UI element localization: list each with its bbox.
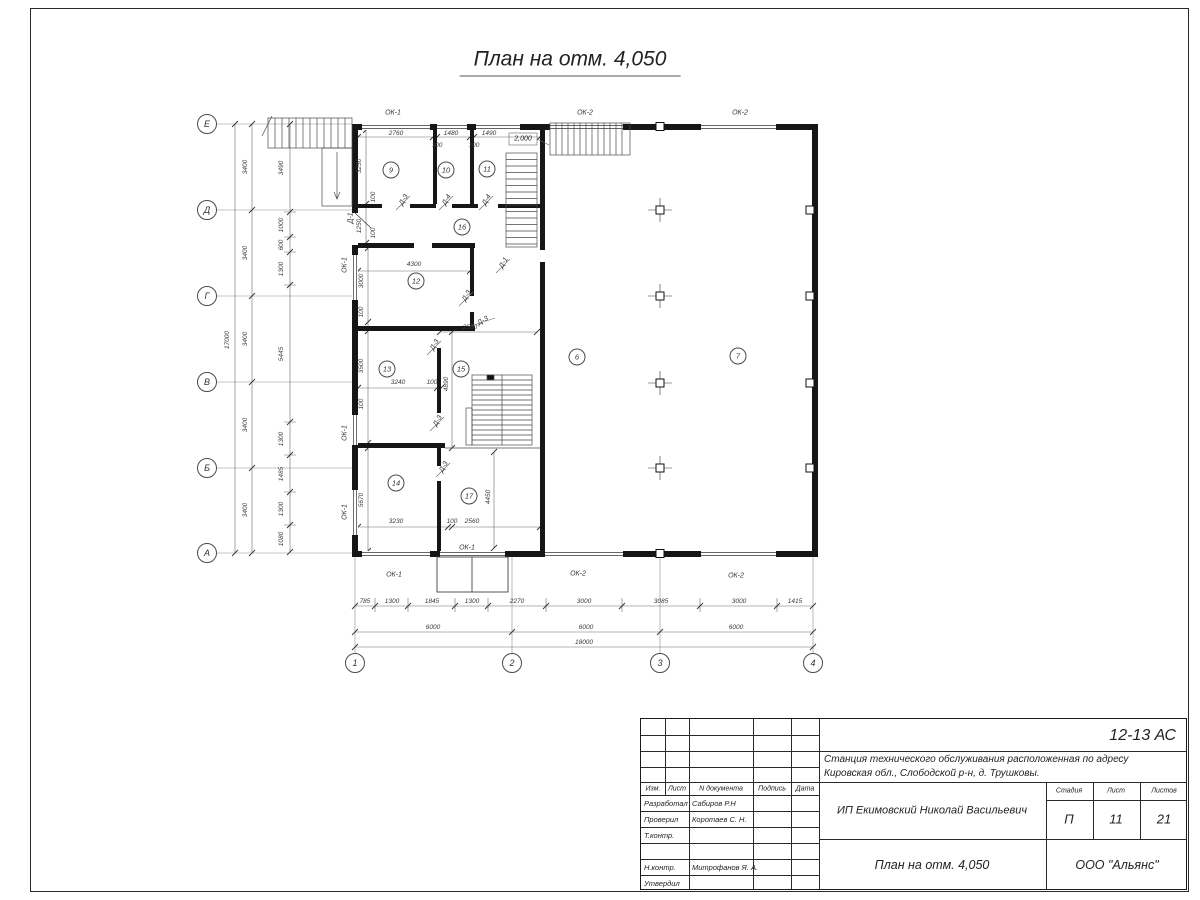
dim-text: 1000 <box>279 218 286 232</box>
role-label: Т.контр. <box>644 832 674 840</box>
room-number-13: 13 <box>379 361 396 378</box>
axis-marker-Г: Г <box>197 286 217 306</box>
dim-text: 1250 <box>357 219 364 233</box>
dim-text: 3400 <box>243 246 250 260</box>
room-number-17: 17 <box>461 488 478 505</box>
room-number-12: 12 <box>408 273 425 290</box>
dim-text: 100 <box>447 519 458 526</box>
dim-text: 1845 <box>425 599 439 606</box>
dim-text: 1490 <box>482 131 496 138</box>
dim-text: 600 <box>279 240 286 251</box>
dim-text: 4450 <box>486 490 493 504</box>
stamp-line <box>641 782 1186 783</box>
axis-marker-Б: Б <box>197 458 217 478</box>
axis-marker-2: 2 <box>502 653 522 673</box>
dim-text: 2270 <box>510 599 524 606</box>
object-line-1: Станция технического обслуживания распол… <box>824 755 1128 765</box>
dim-text: 1300 <box>279 262 286 276</box>
dim-text: 3240 <box>391 380 405 387</box>
window-label: ОК-2 <box>732 110 748 117</box>
axis-marker-А: А <box>197 543 217 563</box>
dim-text: 2760 <box>389 131 403 138</box>
role-name: Сабиров Р.Н <box>692 800 736 808</box>
stamp-line <box>641 751 819 752</box>
stamp-line <box>641 859 819 860</box>
sheets-header: Листов <box>1151 788 1177 795</box>
dim-text: 3250 <box>357 159 364 173</box>
dim-text: 2560 <box>465 519 479 526</box>
dim-text: 6000 <box>426 625 440 632</box>
window-label: ОК-1 <box>459 545 475 552</box>
role-name: Коротаев С. Н. <box>692 816 747 824</box>
dim-text: 3000 <box>577 599 591 606</box>
columns <box>648 123 814 558</box>
drawing-sheet: План на отм. 4,050 <box>0 0 1200 900</box>
axis-marker-3: 3 <box>650 653 670 673</box>
door-label: Д-1 <box>348 212 355 223</box>
dim-text: 3400 <box>243 160 250 174</box>
axis-marker-1: 1 <box>345 653 365 673</box>
stamp-line <box>819 719 820 889</box>
window-label: ОК-1 <box>385 110 401 117</box>
sheet-header: Лист <box>1107 788 1125 795</box>
stamp-line <box>641 875 819 876</box>
window-label: ОК-2 <box>728 573 744 580</box>
room-number-10: 10 <box>438 162 455 179</box>
stamp-line <box>689 719 690 889</box>
window-label: ОК-1 <box>342 425 349 441</box>
col-podp: Подпись <box>758 786 786 793</box>
dim-text: 1300 <box>279 502 286 516</box>
stamp-line <box>641 811 819 812</box>
stamp-line <box>641 735 819 736</box>
dim-text: 100 <box>359 307 366 318</box>
drawing-name: План на отм. 4,050 <box>875 859 990 872</box>
dim-text: 3400 <box>243 503 250 517</box>
role-label: Утвердил <box>644 880 680 888</box>
windows <box>352 124 776 557</box>
role-label: Проверил <box>644 816 678 824</box>
stamp-line <box>641 843 819 844</box>
dimension-ticks <box>232 121 816 650</box>
col-ndoc: N документа <box>699 786 743 793</box>
window-label: ОК-1 <box>386 572 402 579</box>
room-number-16: 16 <box>454 219 471 236</box>
dim-text: 5670 <box>359 493 366 507</box>
stage-header: Стадия <box>1056 788 1082 795</box>
room-number-7: 7 <box>730 348 747 365</box>
dim-text: 5445 <box>279 347 286 361</box>
dim-text: 4300 <box>407 262 421 269</box>
stamp-line <box>1140 782 1141 839</box>
organization-name: ООО "Альянс" <box>1075 859 1158 872</box>
dim-text: 100 <box>371 228 378 239</box>
room-number-9: 9 <box>383 162 400 179</box>
dim-text: 100 <box>469 143 480 150</box>
sheet-number: 11 <box>1109 813 1123 826</box>
dim-text: 1485 <box>279 467 286 481</box>
dim-text: 1415 <box>788 599 802 606</box>
dim-text: 17000 <box>225 331 232 349</box>
stamp-line <box>1046 800 1186 801</box>
axis-marker-Е: Е <box>197 114 217 134</box>
stamp-line <box>641 827 819 828</box>
sheets-total: 21 <box>1157 813 1171 826</box>
role-name: Митрофанов Я. А. <box>692 864 758 872</box>
dim-text: 3230 <box>389 519 403 526</box>
axis-marker-В: В <box>197 372 217 392</box>
dim-text: 3000 <box>732 599 746 606</box>
stamp-line <box>641 767 819 768</box>
room-number-11: 11 <box>479 161 496 178</box>
dim-text: 3000 <box>359 274 366 288</box>
col-izm: Изм. <box>646 786 661 793</box>
dim-text: 3490 <box>279 161 286 175</box>
window-label: ОК-1 <box>342 257 349 273</box>
dim-text: 785 <box>360 599 371 606</box>
stamp-line <box>819 839 1186 840</box>
object-line-2: Кировская обл., Слободской р-н, д. Трушк… <box>824 769 1040 779</box>
dim-text: 18000 <box>575 640 593 647</box>
dim-text: 100 <box>359 399 366 410</box>
dim-text: 3085 <box>654 599 668 606</box>
dim-text: 2550 <box>463 325 477 332</box>
level-mark: 2,000 <box>514 136 532 143</box>
dim-text: 3400 <box>243 332 250 346</box>
client-name: ИП Екимовский Николай Васильевич <box>837 806 1027 817</box>
room-number-15: 15 <box>453 361 470 378</box>
window-label: ОК-1 <box>342 504 349 520</box>
window-label: ОК-2 <box>570 571 586 578</box>
dim-text: 100 <box>427 380 438 387</box>
stamp-line <box>1046 782 1047 889</box>
title-block: 12-13 АС Станция технического обслуживан… <box>640 718 1187 890</box>
dim-text: 1480 <box>444 131 458 138</box>
dim-text: 3400 <box>243 418 250 432</box>
col-list: Лист <box>668 786 686 793</box>
stamp-line <box>1093 782 1094 839</box>
dim-text: 3500 <box>359 359 366 373</box>
stamp-line <box>791 719 792 889</box>
role-label: Н.контр. <box>644 864 676 872</box>
axis-lines <box>216 124 813 654</box>
room-number-14: 14 <box>388 475 405 492</box>
dim-text: 4890 <box>444 377 451 391</box>
walls <box>352 124 818 557</box>
dim-text: 100 <box>432 143 443 150</box>
vestibule <box>437 557 508 592</box>
room-number-6: 6 <box>569 349 586 366</box>
dim-text: 6000 <box>579 625 593 632</box>
window-label: ОК-2 <box>577 110 593 117</box>
stamp-line <box>819 751 1186 752</box>
axis-marker-4: 4 <box>803 653 823 673</box>
axis-marker-Д: Д <box>197 200 217 220</box>
role-label: Разработал <box>644 800 688 808</box>
stamp-line <box>665 719 666 795</box>
dim-text: 6000 <box>729 625 743 632</box>
dim-text: 1300 <box>465 599 479 606</box>
dim-text: 100 <box>371 192 378 203</box>
stage-value: П <box>1064 813 1073 826</box>
dim-text: 1080 <box>279 532 286 546</box>
stamp-line <box>641 795 819 796</box>
doc-code: 12-13 АС <box>1109 728 1176 744</box>
dim-text: 1300 <box>279 432 286 446</box>
dim-text: 1300 <box>385 599 399 606</box>
col-data: Дата <box>796 786 814 793</box>
